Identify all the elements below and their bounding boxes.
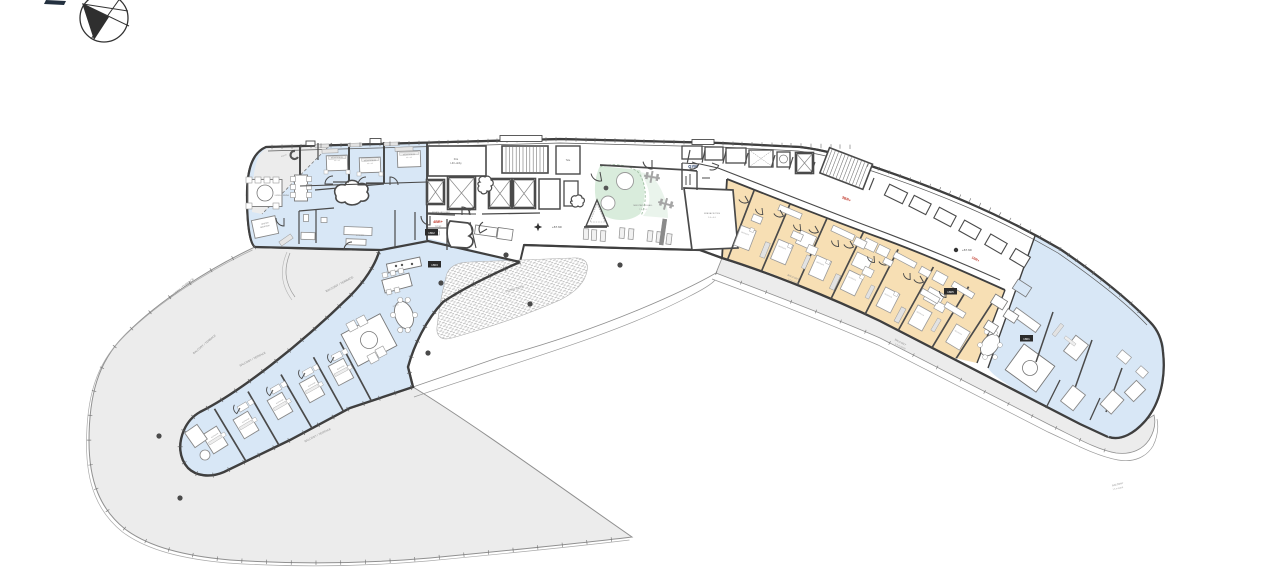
svg-text:1803: 1803 xyxy=(431,263,438,267)
svg-text:Lift Lobby: Lift Lobby xyxy=(450,161,462,165)
svg-text:1.5 m WIDE: 1.5 m WIDE xyxy=(1113,487,1125,491)
svg-text:+67.60: +67.60 xyxy=(552,225,562,229)
svg-text:BEDROOM 01: BEDROOM 01 xyxy=(331,157,343,159)
svg-text:1802: 1802 xyxy=(428,231,435,235)
svg-text:9.0 x 4.0: 9.0 x 4.0 xyxy=(708,217,717,219)
svg-text:4.0 x 4.0: 4.0 x 4.0 xyxy=(406,157,412,159)
svg-text:4.0 x 4.0: 4.0 x 4.0 xyxy=(367,163,373,165)
svg-text:BEDROOM 03: BEDROOM 03 xyxy=(403,154,415,156)
svg-text:KITCHEN: KITCHEN xyxy=(356,235,365,237)
svg-text:7.0 x 7.0: 7.0 x 7.0 xyxy=(639,209,648,211)
svg-text:SPA FACILITIES: SPA FACILITIES xyxy=(704,212,721,215)
svg-text:BEDROOM 02: BEDROOM 02 xyxy=(364,160,376,162)
svg-text:+67.60: +67.60 xyxy=(962,248,972,252)
svg-text:LIVING & DINING: LIVING & DINING xyxy=(275,195,290,197)
svg-text:4.0 x 4.0: 4.0 x 4.0 xyxy=(334,160,340,162)
svg-text:Tele: Tele xyxy=(566,159,571,162)
svg-text:1805: 1805 xyxy=(947,290,954,294)
svg-text:4BR+: 4BR+ xyxy=(433,220,444,224)
svg-text:Fire: Fire xyxy=(454,157,459,161)
svg-text:MEDITATION HALL: MEDITATION HALL xyxy=(633,204,653,207)
svg-text:1801: 1801 xyxy=(1023,337,1030,341)
svg-text:TYP.02: TYP.02 xyxy=(435,226,442,228)
